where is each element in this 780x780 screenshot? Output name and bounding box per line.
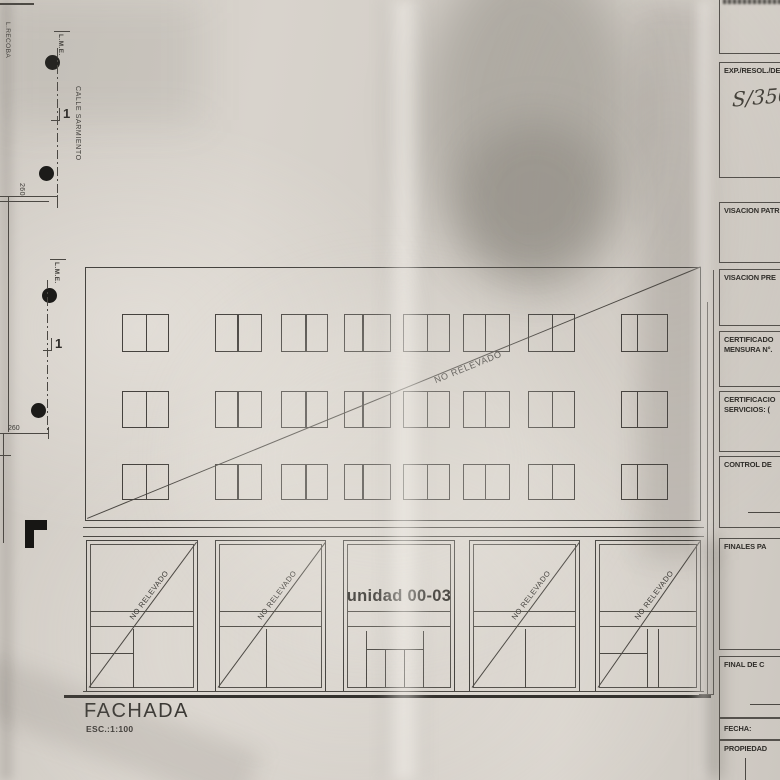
window [621, 391, 668, 428]
window-mullion [362, 392, 364, 427]
sheet-frame-line [699, 694, 714, 695]
window [403, 391, 450, 428]
dimension-label-lower: 260 [8, 425, 20, 432]
wall-section-fill [25, 520, 34, 548]
window-mullion [237, 392, 239, 427]
window-mullion [305, 315, 307, 351]
transom-line [347, 626, 451, 627]
titleblock-box-certificacion-servicios: CERTIFICACIO SERVICIOS: ( [719, 391, 780, 452]
site-plan-line [0, 3, 34, 5]
street-name-label: CALLE SARMIENTO [74, 86, 81, 161]
titleblock-box-cropped [719, 0, 780, 54]
titleblock-box-finales-parciales: FINALES PA [719, 538, 780, 650]
window [463, 314, 510, 352]
dimension-tick [48, 427, 49, 439]
box-label: PROPIEDAD [720, 741, 780, 754]
signature-line [748, 512, 780, 513]
window [344, 391, 391, 428]
window [621, 464, 668, 500]
boundary-line-label: L.RECOBA [4, 22, 11, 58]
sheet-frame-line [707, 302, 708, 695]
window-mullion [552, 465, 554, 499]
door-transom [366, 649, 424, 650]
transom-line [473, 626, 576, 627]
window [215, 314, 262, 352]
window [528, 391, 575, 428]
tree-marker [39, 166, 54, 181]
window-mullion [427, 315, 429, 351]
door-jamb [423, 631, 424, 688]
door-jamb [366, 631, 367, 688]
mullion [658, 629, 659, 688]
window-mullion [485, 315, 487, 351]
door-panel-line [404, 649, 405, 687]
titleblock-box-visacion-patrimonio: VISACION PATR [719, 202, 780, 263]
box-label: CERTIFICACIO [720, 392, 780, 405]
transom-line [90, 626, 194, 627]
illegible-text [723, 0, 780, 4]
property-line-upper [57, 48, 58, 208]
drawing-scale: ESC.:1:100 [86, 724, 133, 734]
storefront-bay-unit: unidad 00-03 [343, 540, 455, 692]
window [215, 464, 262, 500]
property-line-lower [47, 280, 48, 433]
lot-line [8, 196, 9, 432]
window [403, 314, 450, 352]
window-mullion [637, 315, 639, 351]
window-mullion [305, 392, 307, 427]
window [281, 464, 328, 500]
storefront-bay: NO RELEVADO [215, 540, 326, 692]
window-mullion [362, 465, 364, 499]
titleblock-box-certificado-mensura: CERTIFICADO MENSURA N°. [719, 331, 780, 387]
window [463, 464, 510, 500]
titleblock-box-propiedad: PROPIEDAD [719, 740, 780, 780]
tree-marker [31, 403, 46, 418]
lme-label-lower: L.M.E. [53, 262, 60, 284]
mullion [647, 629, 648, 688]
window [344, 464, 391, 500]
window-mullion [146, 392, 148, 427]
window [344, 314, 391, 352]
window-mullion [146, 315, 148, 351]
window [122, 314, 169, 352]
dimension-line [0, 433, 48, 434]
mullion [525, 629, 526, 688]
drawing-title: FACHADA [84, 700, 189, 723]
storefront-bay: NO RELEVADO [595, 540, 701, 692]
axis-bracket [51, 120, 60, 121]
transom-line [347, 611, 451, 612]
axis-marker-upper: 1 [63, 106, 70, 121]
handwritten-number: S/350 [732, 82, 780, 111]
storefront-bay: NO RELEVADO [469, 540, 580, 692]
window [122, 391, 169, 428]
axis-bracket [43, 350, 52, 351]
box-label: FINALES PA [720, 539, 780, 552]
mullion [266, 629, 267, 688]
dimension-line [0, 455, 11, 456]
window [621, 314, 668, 352]
door-panel-line [385, 649, 386, 687]
window-mullion [427, 465, 429, 499]
box-label: EXP./RESOL./DEC [720, 63, 780, 76]
panel-line [600, 653, 647, 654]
transom-line [219, 626, 322, 627]
unit-label: unidad 00-03 [338, 587, 460, 606]
box-label: FINAL DE C [720, 657, 780, 670]
window [528, 314, 575, 352]
lme-tick [54, 31, 70, 32]
box-label: FECHA: [720, 719, 780, 734]
window [403, 464, 450, 500]
dimension-label-upper: 260 [18, 183, 25, 196]
sheet-frame-line [713, 270, 714, 695]
window-mullion [485, 392, 487, 427]
dimension-tick [57, 195, 58, 207]
box-label: VISACION PRE [720, 270, 780, 283]
window-mullion [146, 465, 148, 499]
titleblock-box-visacion-previa: VISACION PRE [719, 269, 780, 326]
window [528, 464, 575, 500]
window-mullion [637, 465, 639, 499]
titleblock-box-control: CONTROL DE [719, 456, 780, 528]
ground-line [83, 691, 704, 692]
axis-marker-lower: 1 [55, 336, 62, 351]
cornice-line [83, 536, 704, 537]
box-label: SERVICIOS: ( [720, 405, 780, 415]
window [215, 391, 262, 428]
cornice-line [83, 527, 704, 528]
storefront-bay: NO RELEVADO [86, 540, 198, 692]
window-mullion [362, 315, 364, 351]
storefront-frame [347, 544, 451, 688]
box-label: VISACION PATR [720, 203, 780, 216]
window-mullion [237, 465, 239, 499]
window [281, 314, 328, 352]
plan-sheet: L.RECOBA L.M.E. 1 CALLE SARMIENTO 260 L.… [0, 0, 780, 780]
box-divider [745, 758, 746, 780]
title-block: EXP./RESOL./DEC S/350 VISACION PATR VISA… [719, 0, 780, 780]
window [122, 464, 169, 500]
lme-tick [50, 259, 66, 260]
transom-line [473, 611, 576, 612]
titleblock-box-fecha: FECHA: [719, 718, 780, 740]
transom-line [599, 626, 697, 627]
tree-marker [42, 288, 57, 303]
signature-line [750, 704, 780, 705]
window-mullion [552, 392, 554, 427]
window-mullion [237, 315, 239, 351]
window-mullion [305, 465, 307, 499]
window [463, 391, 510, 428]
window [281, 391, 328, 428]
window-mullion [427, 392, 429, 427]
transom-line [219, 611, 322, 612]
window-mullion [637, 392, 639, 427]
window-mullion [485, 465, 487, 499]
titleblock-box-expediente: EXP./RESOL./DEC S/350 [719, 62, 780, 178]
ground-line-heavy [64, 695, 711, 698]
mullion [133, 629, 134, 688]
transom-line [599, 611, 697, 612]
titleblock-box-final-obra: FINAL DE C [719, 656, 780, 718]
box-label: CONTROL DE [720, 457, 780, 470]
box-label: CERTIFICADO [720, 332, 780, 345]
lot-line [3, 433, 4, 543]
window-mullion [552, 315, 554, 351]
box-label: MENSURA N°. [720, 345, 780, 355]
